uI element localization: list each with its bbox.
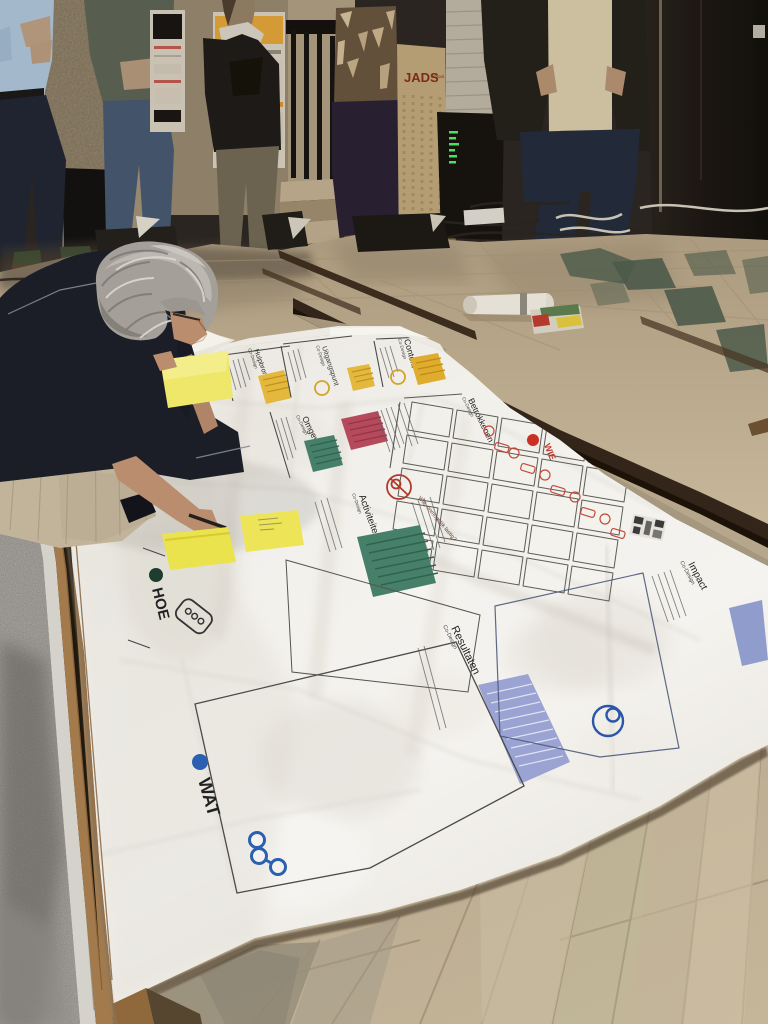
svg-text:school: school bbox=[431, 74, 444, 79]
